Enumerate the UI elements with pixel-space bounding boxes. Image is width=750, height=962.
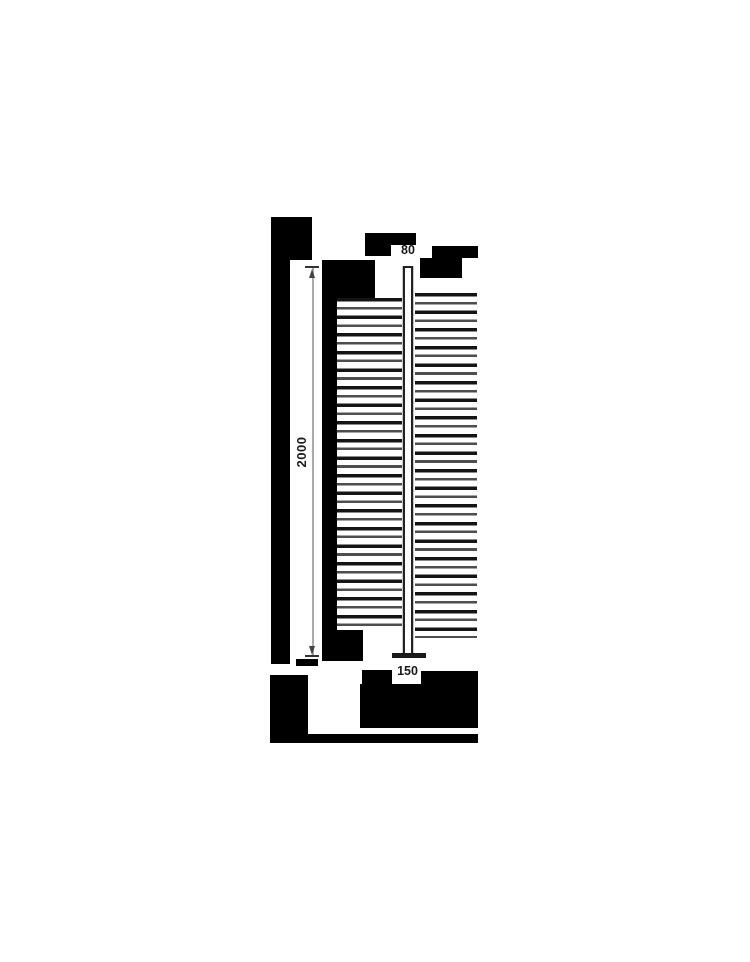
height-dimension-arrow-up-icon <box>309 269 315 278</box>
height-dimension-tick-bottom <box>305 655 319 657</box>
redacted-block-bottom-left-large <box>270 675 308 743</box>
redacted-block-left-column <box>271 260 290 664</box>
redacted-block-bottom-center-large <box>360 684 478 728</box>
redacted-block-bottom-ext-right <box>421 671 478 684</box>
height-dimension-line <box>312 268 314 656</box>
redacted-block-top-left <box>271 217 312 260</box>
redacted-block-small-bottom-left <box>296 659 318 666</box>
right-rails <box>415 293 477 638</box>
redacted-block-below-left-rails <box>322 630 363 661</box>
redacted-block-middle-strip <box>322 298 337 631</box>
base-plate <box>392 653 426 658</box>
height-dimension-arrow-down-icon <box>309 646 315 655</box>
redacted-block-upper-middle <box>322 260 375 298</box>
height-dimension-label: 2000 <box>295 432 309 472</box>
redacted-block-top-right-upper <box>432 246 478 258</box>
width-dimension-label: 80 <box>388 244 428 257</box>
left-rails <box>337 298 402 630</box>
technical-drawing-canvas: 2000 80 150 <box>0 0 750 962</box>
base-dimension-label: 150 <box>387 665 428 678</box>
redacted-block-top-right-lower <box>420 258 462 278</box>
redacted-block-bottom-bar <box>270 734 478 743</box>
post <box>403 266 413 653</box>
